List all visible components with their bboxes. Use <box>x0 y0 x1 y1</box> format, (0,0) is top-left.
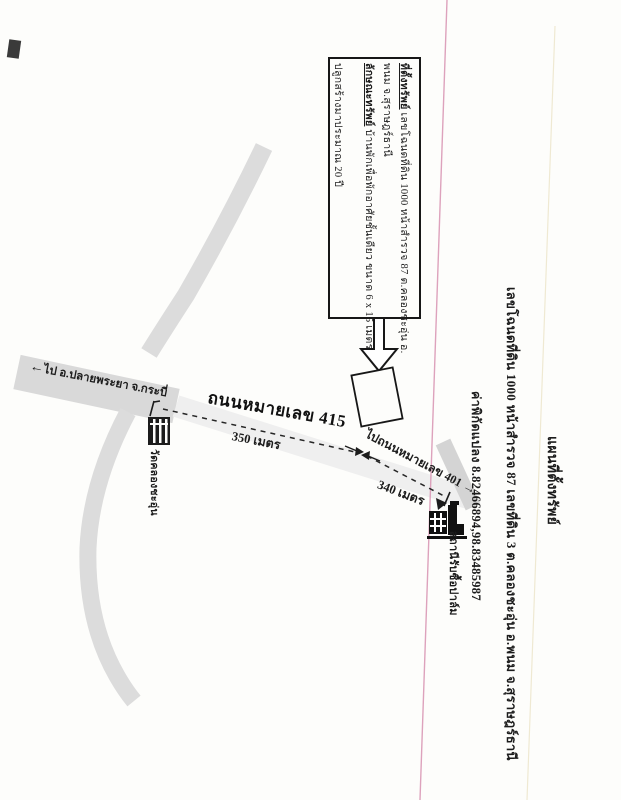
scan-mark <box>7 39 21 58</box>
road-lower <box>88 412 134 701</box>
info-box-line-3: ลักษณะทรัพย์ บ้านพักเพื่อพักอาศัยชั้นเดี… <box>361 63 378 350</box>
info-box-line-1: ที่ตั้งทรัพย์ เลขโฉนดที่ดิน 1000 หน้าสำร… <box>396 63 413 354</box>
property-location-text: เลขโฉนดที่ดิน 1000 หน้าสำรวจ 87 ต.คลองชะ… <box>398 110 409 354</box>
road-upper-diagonal <box>149 147 264 353</box>
property-plot-rect <box>351 367 402 426</box>
temple-icon <box>148 417 170 445</box>
scanned-map-page: แผนที่ตั้งทรัพย์ เลขโฉนดที่ดิน 1000 หน้า… <box>0 0 621 800</box>
temple-label: วัดคลองชะอุ่น <box>146 449 163 516</box>
property-type-label: ลักษณะทรัพย์ <box>363 63 374 126</box>
info-box-line-2: พนม จ.สุราษฎร์ธานี <box>379 63 396 157</box>
deed-info-line: เลขโฉนดที่ดิน 1000 หน้าสำรวจ 87 เลขที่ดิ… <box>501 287 522 761</box>
pink-fold-line <box>420 0 447 800</box>
palm-station-label: สถานีรับซื้อปาล์ม <box>445 531 463 616</box>
beige-fold-line <box>527 26 555 800</box>
map-drawing <box>0 0 621 800</box>
property-type-text: บ้านพักเพื่อพักอาศัยชั้นเดียว ขนาด 6 x 1… <box>363 126 374 349</box>
page-title: แผนที่ตั้งทรัพย์ <box>541 436 563 525</box>
property-location-label: ที่ตั้งทรัพย์ <box>398 63 409 110</box>
info-box-line-4: ปลูกสร้างมาประมาณ 20 ปี <box>330 63 347 187</box>
